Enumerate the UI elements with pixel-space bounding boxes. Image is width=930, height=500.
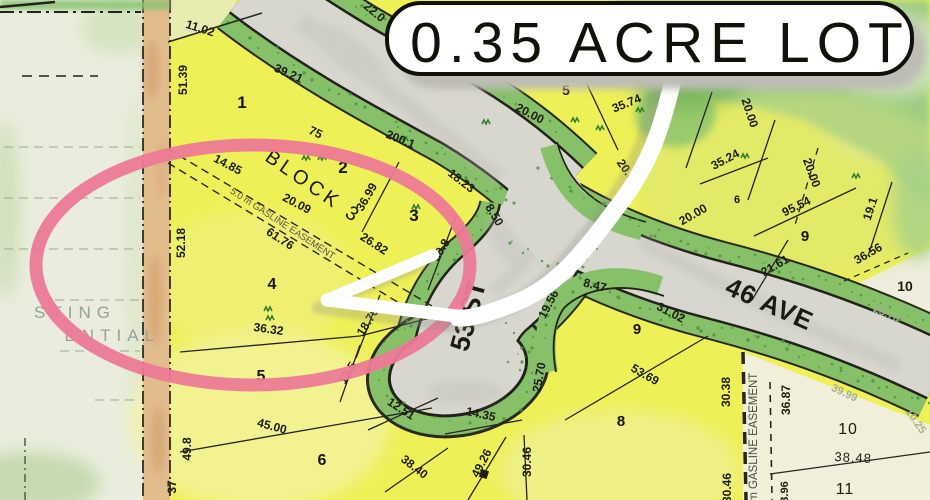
svg-text:38.48: 38.48: [834, 449, 872, 466]
svg-text:4: 4: [268, 276, 277, 293]
svg-text:3.96: 3.96: [779, 481, 791, 500]
svg-text:8: 8: [617, 413, 625, 430]
svg-text:37: 37: [165, 480, 179, 494]
svg-text:6: 6: [734, 194, 740, 206]
svg-text:30.46: 30.46: [720, 473, 734, 500]
svg-text:51.39: 51.39: [176, 65, 190, 95]
svg-text:9: 9: [801, 228, 809, 245]
svg-text:49.8: 49.8: [180, 437, 194, 461]
svg-text:0.35 ACRE LOT: 0.35 ACRE LOT: [410, 11, 910, 75]
svg-text:52.18: 52.18: [174, 228, 188, 258]
svg-text:10: 10: [897, 278, 913, 294]
svg-text:3: 3: [409, 206, 418, 225]
svg-text:6: 6: [318, 452, 327, 469]
svg-text:36.87: 36.87: [779, 385, 793, 415]
svg-text:0 m GASLINE EASEMENT: 0 m GASLINE EASEMENT: [748, 373, 760, 500]
svg-text:11: 11: [836, 481, 855, 498]
svg-text:30.46: 30.46: [520, 447, 534, 477]
svg-text:9: 9: [633, 321, 641, 338]
svg-text:30.38: 30.38: [719, 377, 733, 407]
svg-text:1: 1: [237, 93, 246, 112]
svg-text:10: 10: [838, 421, 858, 438]
